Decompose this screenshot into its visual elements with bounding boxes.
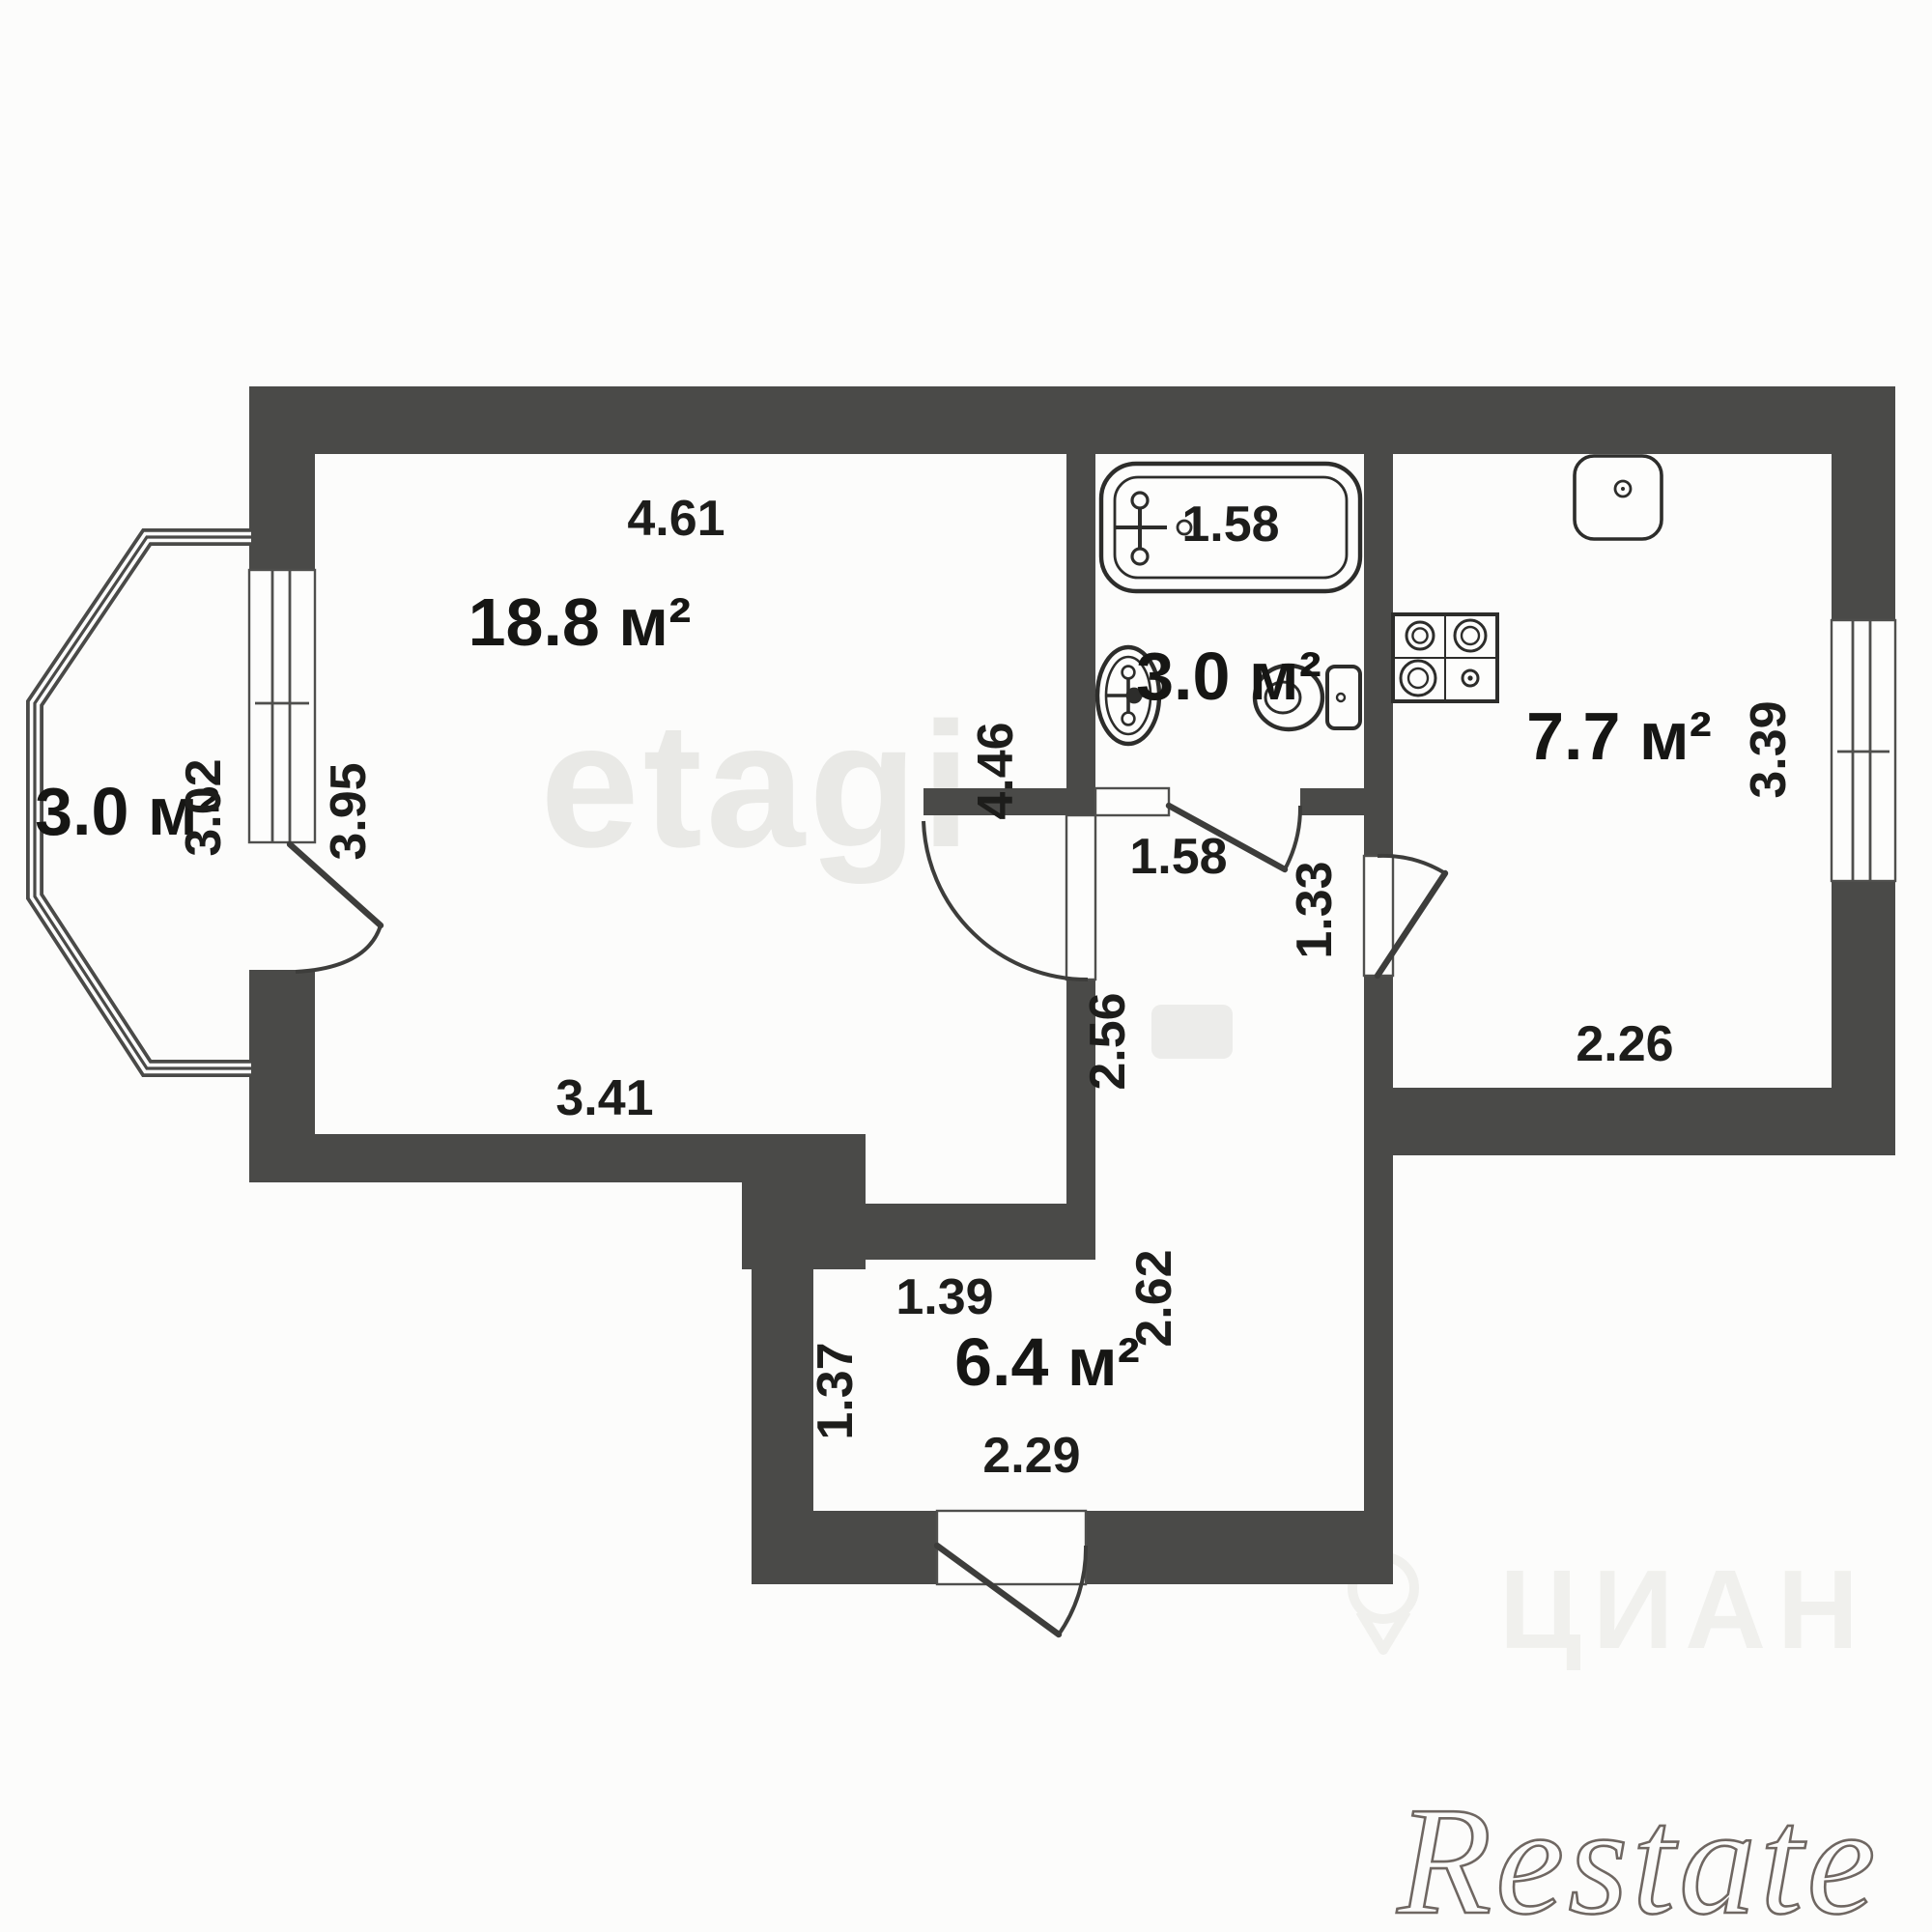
balcony-door (290, 844, 381, 972)
entrance-door (937, 1511, 1086, 1634)
wall-left-upper (249, 454, 315, 570)
walls (249, 386, 1895, 1584)
dim-kitchen-door: 1.33 (1287, 861, 1343, 958)
dim-hallway-left: 1.37 (808, 1342, 864, 1439)
wall-bathroom-kitchen (1364, 454, 1393, 856)
area-kitchen: 7.7 м² (1526, 698, 1712, 774)
area-hallway: 6.4 м² (954, 1324, 1140, 1400)
dim-living-left: 3.95 (321, 762, 377, 860)
watermark-etagi: etagi (540, 685, 974, 884)
burner-bottom-left-inner (1408, 668, 1428, 688)
dim-living-top: 4.61 (627, 491, 724, 547)
wall-kitchen-bottom (1364, 1088, 1895, 1155)
kitchen-sink-drain-dot (1621, 487, 1625, 491)
watermark-restate: Restate (1397, 1775, 1880, 1932)
kitchen-window (1832, 620, 1895, 881)
stove-4-burner (1393, 614, 1497, 701)
dim-balcony-depth: 3.02 (176, 758, 232, 856)
wall-hallway-bottom-left (752, 1511, 937, 1584)
wall-livingroom-right (1066, 454, 1095, 788)
dim-kitchen-bottom: 2.26 (1576, 1016, 1673, 1072)
toilet-flush-button (1337, 694, 1345, 701)
dim-bathroom-door-wall: 1.58 (1129, 829, 1227, 885)
kitchen-sink (1575, 456, 1662, 539)
floor-plan-canvas: etagi ЦИАН Restate (0, 0, 1932, 1932)
wall-right-upper (1832, 454, 1895, 620)
wall-hallway-bottom-right (1086, 1511, 1393, 1584)
floor-plan-svg: etagi ЦИАН Restate (0, 0, 1932, 1932)
dim-hallway-top: 1.39 (895, 1269, 993, 1325)
dim-bathtub: 1.58 (1181, 497, 1279, 553)
dim-hallway-bottom: 2.29 (982, 1428, 1080, 1484)
wall-hallway-right (1364, 976, 1393, 1584)
burner-top-right-inner (1462, 627, 1479, 644)
living-room-balcony-window (249, 570, 315, 842)
dim-corridor-upper: 2.56 (1080, 992, 1136, 1090)
area-living-room: 18.8 м² (469, 584, 692, 660)
area-bathroom: 3.0 м² (1136, 639, 1321, 714)
kitchen-door (1364, 856, 1445, 976)
watermark-cian: ЦИАН (1499, 1547, 1870, 1672)
dim-kitchen-right: 3.39 (1741, 700, 1797, 798)
dim-living-right: 4.46 (968, 722, 1024, 819)
burner-bottom-right-dot (1467, 675, 1472, 680)
burner-top-left-inner (1412, 628, 1427, 642)
wall-exterior-top (249, 386, 1895, 454)
dim-living-bottom: 3.41 (555, 1070, 653, 1126)
watermark-etagi-logo (1151, 1005, 1233, 1059)
wall-step-horizontal (866, 1204, 1066, 1260)
